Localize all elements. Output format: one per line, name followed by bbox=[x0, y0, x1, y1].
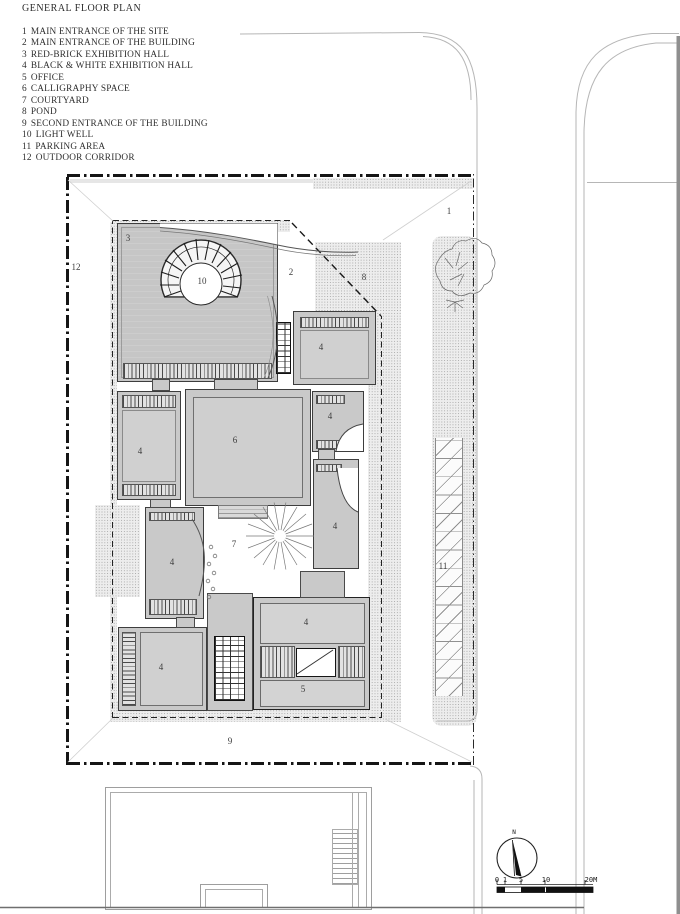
legend-item-label: CALLIGRAPHY SPACE bbox=[31, 84, 130, 94]
legend-item-number: 7 bbox=[22, 96, 27, 106]
legend-item-number: 9 bbox=[22, 119, 27, 129]
plan-number-label: 1 bbox=[447, 206, 452, 216]
corridor-link bbox=[318, 449, 335, 460]
compound-outline-left bbox=[112, 220, 113, 718]
legend-item-number: 10 bbox=[22, 130, 32, 140]
compound-outline-bottom bbox=[113, 717, 382, 718]
corridor-link bbox=[150, 499, 171, 508]
building-inner-room bbox=[140, 632, 203, 706]
legend-item-label: BLACK & WHITE EXHIBITION HALL bbox=[31, 61, 193, 71]
louvre-band bbox=[316, 464, 342, 472]
plan-number-label: 4 bbox=[170, 557, 175, 567]
legend-item-number: 1 bbox=[22, 27, 27, 37]
louvre-band bbox=[316, 440, 343, 449]
boundary-wall-dark bbox=[677, 36, 680, 914]
building-bw-hall-east-upper bbox=[312, 391, 364, 452]
office-ramp-room bbox=[296, 648, 336, 677]
plan-number-label: 12 bbox=[72, 262, 81, 272]
corridor-link bbox=[300, 571, 345, 598]
plan-number-label: 4 bbox=[328, 411, 333, 421]
legend-item: 2MAIN ENTRANCE OF THE BUILDING bbox=[22, 38, 208, 49]
legend-item-label: COURTYARD bbox=[31, 96, 89, 106]
adjacent-building-corridor-wall bbox=[358, 792, 359, 908]
plan-number-label: 7 bbox=[232, 539, 237, 549]
louvre-band bbox=[149, 512, 195, 521]
legend-item-label: SECOND ENTRANCE OF THE BUILDING bbox=[31, 119, 208, 129]
legend-item-label: MAIN ENTRANCE OF THE BUILDING bbox=[31, 38, 195, 48]
louvre-band bbox=[122, 395, 176, 408]
legend-item-label: OFFICE bbox=[31, 73, 64, 83]
legend-item: 7COURTYARD bbox=[22, 96, 208, 107]
corridor-link bbox=[176, 617, 195, 628]
scale-tick-label: 5 bbox=[519, 876, 523, 884]
compound-outline-right bbox=[381, 316, 382, 718]
louvre-band bbox=[338, 646, 365, 678]
north-label: N bbox=[512, 829, 516, 836]
legend-item-label: MAIN ENTRANCE OF THE SITE bbox=[31, 27, 169, 37]
plan-number-label: 4 bbox=[159, 662, 164, 672]
legend-item-label: OUTDOOR CORRIDOR bbox=[36, 153, 135, 163]
legend-item-number: 4 bbox=[22, 61, 27, 71]
plan-number-label: 9 bbox=[228, 736, 233, 746]
building-bw-hall-east-lower bbox=[313, 459, 359, 569]
building-calligraphy-space bbox=[185, 389, 311, 506]
plan-number-label: 8 bbox=[362, 272, 367, 282]
building-inner-line bbox=[121, 227, 274, 378]
plan-number-label: 2 bbox=[289, 267, 294, 277]
adjacent-building-corridor-wall bbox=[352, 792, 353, 908]
plan-number-label: 4 bbox=[304, 617, 309, 627]
plan-number-label: 3 bbox=[126, 233, 131, 243]
legend-item: 11PARKING AREA bbox=[22, 142, 208, 153]
legend-item-number: 12 bbox=[22, 153, 32, 163]
legend-item-label: PARKING AREA bbox=[35, 142, 105, 152]
building-inner-room bbox=[193, 397, 303, 498]
building-red-brick-exhibition-hall bbox=[117, 223, 278, 382]
stair-b bbox=[214, 636, 245, 701]
pond-area bbox=[315, 242, 401, 314]
building-bw-hall-west bbox=[117, 391, 181, 500]
legend-item-label: RED-BRICK EXHIBITION HALL bbox=[31, 50, 169, 60]
plan-number-label: 11 bbox=[439, 561, 448, 571]
louvre-band bbox=[316, 395, 345, 404]
louvre-band bbox=[300, 317, 369, 328]
legend-item-number: 2 bbox=[22, 38, 27, 48]
plan-number-label: 6 bbox=[233, 435, 238, 445]
office-upper-hall bbox=[260, 603, 365, 644]
legend-item-number: 5 bbox=[22, 73, 27, 83]
top-right-path-strip bbox=[313, 178, 473, 189]
entrance-louvre-band bbox=[123, 363, 272, 379]
floor-plan-canvas: GENERAL FLOOR PLAN 1MAIN ENTRANCE OF THE… bbox=[0, 0, 680, 914]
legend-item: 3RED-BRICK EXHIBITION HALL bbox=[22, 50, 208, 61]
legend-item-label: POND bbox=[31, 107, 57, 117]
legend-item: 12OUTDOOR CORRIDOR bbox=[22, 153, 208, 164]
legend: GENERAL FLOOR PLAN 1MAIN ENTRANCE OF THE… bbox=[22, 3, 208, 164]
legend-item-number: 8 bbox=[22, 107, 27, 117]
legend-item-number: 3 bbox=[22, 50, 27, 60]
scale-tick-label: 1 bbox=[503, 876, 507, 884]
legend-item-number: 11 bbox=[22, 142, 31, 152]
corridor-link bbox=[152, 379, 170, 391]
legend-item-number: 6 bbox=[22, 84, 27, 94]
legend-item: 5OFFICE bbox=[22, 73, 208, 84]
courtyard-steps bbox=[218, 505, 268, 519]
legend-item: 1MAIN ENTRANCE OF THE SITE bbox=[22, 27, 208, 38]
legend-list: 1MAIN ENTRANCE OF THE SITE 2MAIN ENTRANC… bbox=[22, 27, 208, 164]
legend-item: 4BLACK & WHITE EXHIBITION HALL bbox=[22, 61, 208, 72]
compound-outline-top bbox=[113, 220, 293, 221]
plan-number-label: 10 bbox=[198, 276, 207, 286]
office-lower-hall bbox=[260, 680, 365, 707]
louvre-band bbox=[149, 599, 197, 615]
building-bw-hall-ne bbox=[293, 311, 376, 385]
corridor-link bbox=[214, 379, 258, 390]
legend-item: 8POND bbox=[22, 107, 208, 118]
plan-number-label: 4 bbox=[333, 521, 338, 531]
page-title: GENERAL FLOOR PLAN bbox=[22, 3, 208, 14]
left-planting-patch bbox=[95, 505, 140, 597]
scale-tick-label: 0 bbox=[495, 876, 499, 884]
site-boundary-right bbox=[473, 174, 475, 765]
north-compass bbox=[497, 838, 537, 878]
adjacent-building-porch-inner bbox=[205, 889, 263, 908]
site-boundary-bottom bbox=[67, 762, 475, 765]
louvre-band bbox=[122, 484, 176, 496]
site-boundary-left bbox=[66, 174, 69, 765]
scale-tick-label: 20M bbox=[585, 876, 598, 884]
plan-number-label: 5 bbox=[301, 684, 306, 694]
legend-item: 9SECOND ENTRANCE OF THE BUILDING bbox=[22, 119, 208, 130]
site-boundary-top bbox=[67, 174, 475, 177]
scale-tick-label: 10 bbox=[542, 876, 550, 884]
building-inner-room bbox=[122, 410, 176, 482]
legend-item: 6CALLIGRAPHY SPACE bbox=[22, 84, 208, 95]
louvre-band bbox=[260, 646, 295, 678]
louvre-band-side bbox=[122, 632, 136, 706]
plan-number-label: 4 bbox=[319, 342, 324, 352]
building-inner-room bbox=[300, 330, 369, 379]
legend-item-label: LIGHT WELL bbox=[36, 130, 94, 140]
stair-a bbox=[276, 322, 291, 374]
building-office-complex bbox=[253, 597, 370, 710]
legend-item: 10LIGHT WELL bbox=[22, 130, 208, 141]
plan-number-label: 4 bbox=[138, 446, 143, 456]
